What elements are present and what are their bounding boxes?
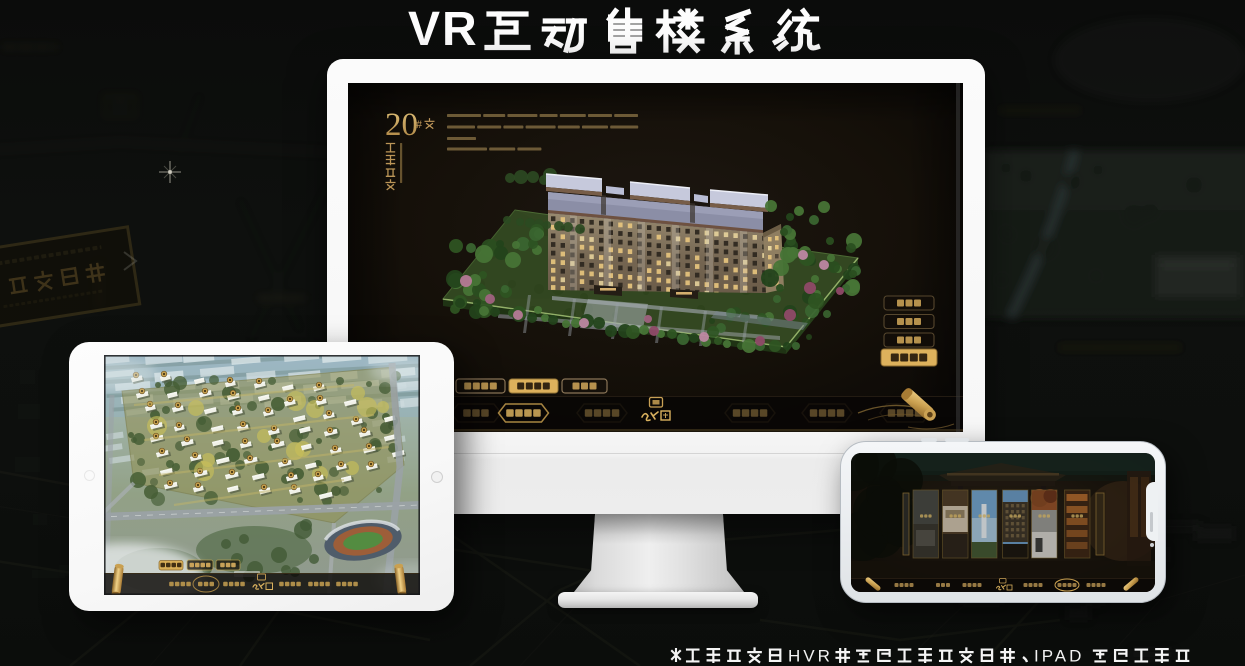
svg-text:HVR: HVR — [788, 647, 833, 666]
svg-text:#: # — [416, 117, 422, 131]
svg-text:20: 20 — [385, 107, 418, 143]
svg-text:IPAD: IPAD — [1034, 647, 1084, 666]
svg-text:VR: VR — [408, 3, 479, 56]
